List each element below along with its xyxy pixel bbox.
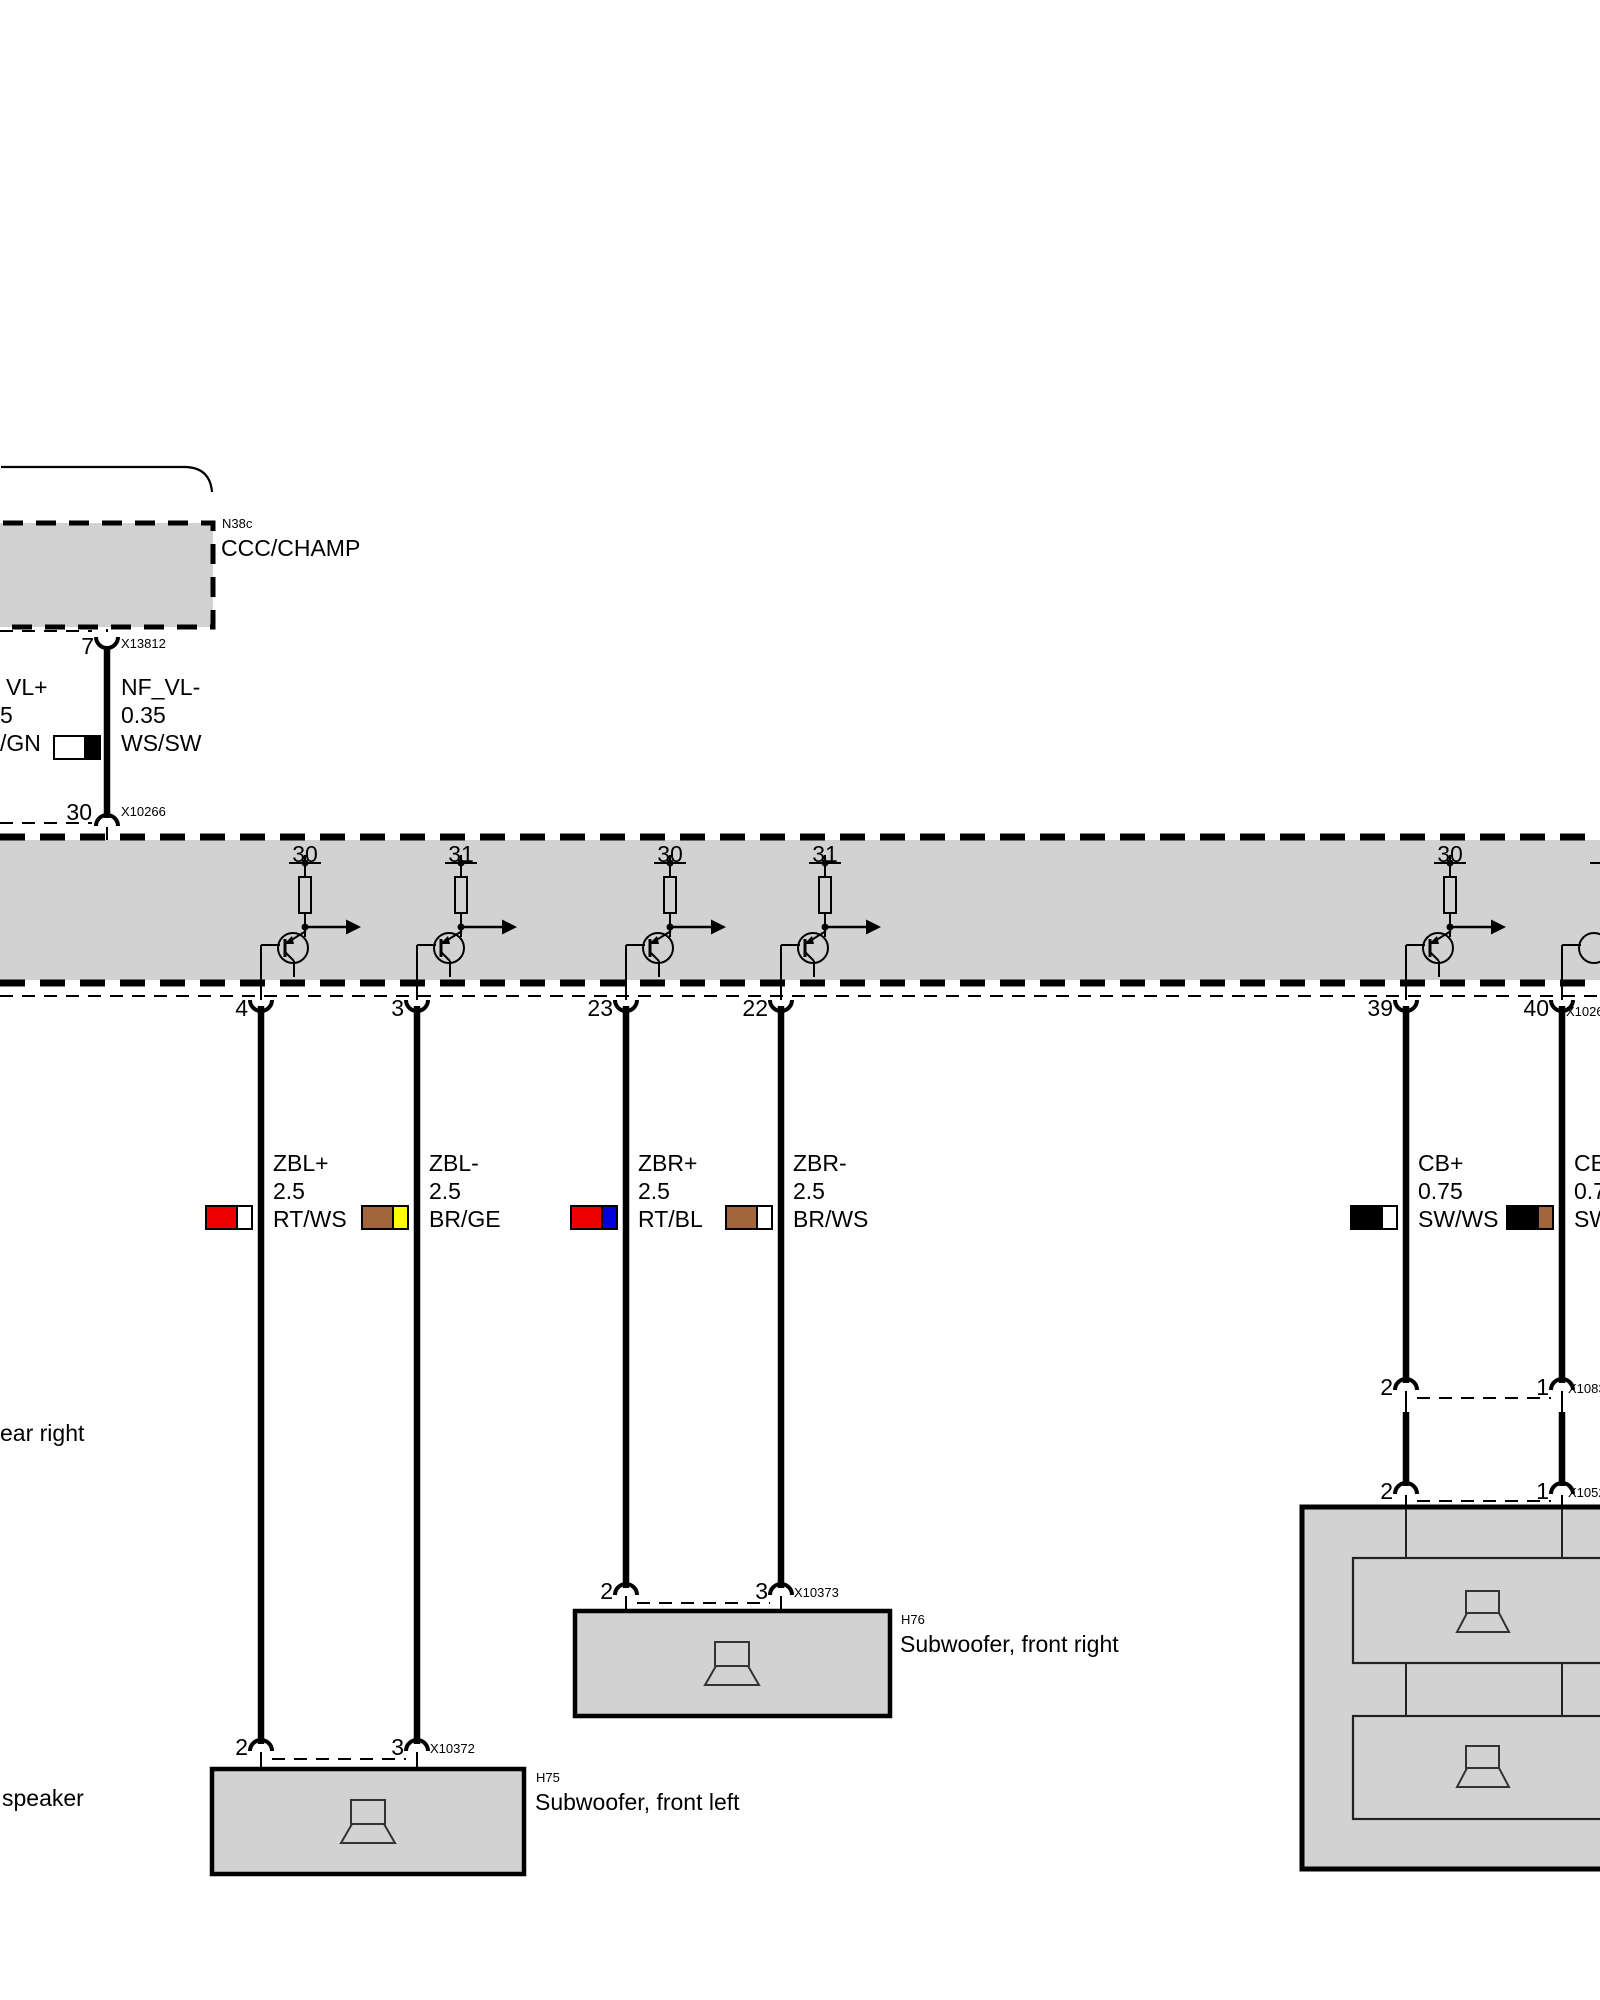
- connector-x13812-label: X13812: [121, 636, 166, 651]
- wire-name: CB: [1574, 1150, 1600, 1178]
- cut-wire-size: 5: [0, 702, 13, 728]
- row1-pin-2: 2: [1323, 1374, 1393, 1400]
- swatch-stripe-color: [1381, 1207, 1396, 1228]
- connector-x10373-label: X10373: [794, 1585, 839, 1600]
- swatch-main-color: [1352, 1207, 1381, 1228]
- swatch-stripe-color: [236, 1207, 251, 1228]
- ccc-champ-module-box: [0, 523, 213, 627]
- supply-pin-5: 30: [1420, 841, 1480, 867]
- swatch-stripe-color: [392, 1207, 407, 1228]
- out-pin-4: 4: [178, 995, 248, 1021]
- swatch-cb-minus: [1506, 1205, 1554, 1230]
- wire-label-zbr-plus: ZBR+ 2.5 RT/BL: [638, 1150, 703, 1234]
- fragment-rear-right: ear right: [0, 1420, 84, 1446]
- nf-wire-color-swatch: [53, 735, 101, 760]
- out-pin-22: 22: [698, 995, 768, 1021]
- out-pin-3: 3: [334, 995, 404, 1021]
- swatch-main-color: [1508, 1207, 1537, 1228]
- h75-pin-2: 2: [178, 1734, 248, 1760]
- row2-pin-2: 2: [1323, 1478, 1393, 1504]
- wire-size: 0.7: [1574, 1178, 1600, 1206]
- h75-id: H75: [536, 1770, 560, 1785]
- pin-7-label: 7: [24, 633, 94, 659]
- wire-size: 2.5: [638, 1178, 703, 1206]
- h76-pin-2: 2: [543, 1578, 613, 1604]
- ccc-module-id: N38c: [222, 516, 252, 531]
- wire-name: ZBL-: [429, 1150, 501, 1178]
- swatch-zbl-plus: [205, 1205, 253, 1230]
- supply-pin-1: 30: [275, 841, 335, 867]
- wire-name: ZBR-: [793, 1150, 868, 1178]
- h76-pin-3: 3: [698, 1578, 768, 1604]
- swatch-main-color: [727, 1207, 756, 1228]
- connector-x10372-label: X10372: [430, 1741, 475, 1756]
- out-pin-40: 40: [1479, 995, 1549, 1021]
- h76-name: Subwoofer, front right: [900, 1631, 1119, 1657]
- wire-color-code: RT/WS: [273, 1206, 347, 1234]
- ccc-module-name: CCC/CHAMP: [221, 535, 360, 561]
- h76-subwoofer-box: [575, 1611, 890, 1716]
- wire-size: 0.75: [1418, 1178, 1499, 1206]
- swatch-stripe-color: [756, 1207, 771, 1228]
- wire-name: ZBR+: [638, 1150, 703, 1178]
- h75-name: Subwoofer, front left: [535, 1789, 740, 1815]
- wire-size: 2.5: [429, 1178, 501, 1206]
- h75-pin-3: 3: [334, 1734, 404, 1760]
- wire-color-code: SW/WS: [1418, 1206, 1499, 1234]
- cut-wire-color: /GN: [0, 730, 41, 756]
- swatch-main-color: [363, 1207, 392, 1228]
- out-pin-39: 39: [1323, 995, 1393, 1021]
- out-pin-23: 23: [543, 995, 613, 1021]
- wire-label-zbl-minus: ZBL- 2.5 BR/GE: [429, 1150, 501, 1234]
- central-bass-driver-1-box: [1353, 1558, 1600, 1663]
- wire-color-code: SW: [1574, 1206, 1600, 1234]
- swatch-main-color: [55, 737, 84, 758]
- swatch-zbr-minus: [725, 1205, 773, 1230]
- row1-pin-1: 1: [1479, 1374, 1549, 1400]
- wire-label-cb-plus: CB+ 0.75 SW/WS: [1418, 1150, 1499, 1234]
- wire-label-cb-minus: CB 0.7 SW: [1574, 1150, 1600, 1234]
- wire-label-zbr-minus: ZBR- 2.5 BR/WS: [793, 1150, 868, 1234]
- wire-size: 2.5: [793, 1178, 868, 1206]
- wire-name: ZBL+: [273, 1150, 347, 1178]
- swatch-stripe-color: [84, 737, 99, 758]
- wiring-diagram-page: N38c CCC/CHAMP 7 X13812 VL+ 5 /GN NF_VL-…: [0, 0, 1600, 2000]
- swatch-main-color: [207, 1207, 236, 1228]
- supply-pin-3: 30: [640, 841, 700, 867]
- wire-color-code: BR/GE: [429, 1206, 501, 1234]
- supply-pin-4: 31: [795, 841, 855, 867]
- swatch-cb-plus: [1350, 1205, 1398, 1230]
- amp-edge-connector-label: X1026: [1566, 1004, 1600, 1019]
- connector-x1052-label: X1052: [1568, 1485, 1600, 1500]
- nf-wire-color: WS/SW: [121, 730, 202, 758]
- wire-name: CB+: [1418, 1150, 1499, 1178]
- system-bracket: [1, 467, 212, 492]
- connector-x10266-label: X10266: [121, 804, 166, 819]
- wire-color-code: RT/BL: [638, 1206, 703, 1234]
- wire-color-code: BR/WS: [793, 1206, 868, 1234]
- swatch-stripe-color: [1537, 1207, 1552, 1228]
- connector-x1083-label: X1083: [1568, 1381, 1600, 1396]
- h75-subwoofer-box: [212, 1769, 524, 1874]
- swatch-stripe-color: [601, 1207, 616, 1228]
- cut-wire-name: VL+: [6, 674, 48, 700]
- supply-pin-2: 31: [431, 841, 491, 867]
- pin-30-label: 30: [22, 799, 92, 825]
- swatch-zbr-plus: [570, 1205, 618, 1230]
- nf-wire-name: NF_VL-: [121, 674, 202, 702]
- swatch-main-color: [572, 1207, 601, 1228]
- wire-size: 2.5: [273, 1178, 347, 1206]
- nf-wire-label: NF_VL- 0.35 WS/SW: [121, 674, 202, 758]
- wire-label-zbl-plus: ZBL+ 2.5 RT/WS: [273, 1150, 347, 1234]
- row2-pin-1: 1: [1479, 1478, 1549, 1504]
- swatch-zbl-minus: [361, 1205, 409, 1230]
- fragment-speaker: speaker: [2, 1785, 84, 1811]
- nf-wire-size: 0.35: [121, 702, 202, 730]
- h76-id: H76: [901, 1612, 925, 1627]
